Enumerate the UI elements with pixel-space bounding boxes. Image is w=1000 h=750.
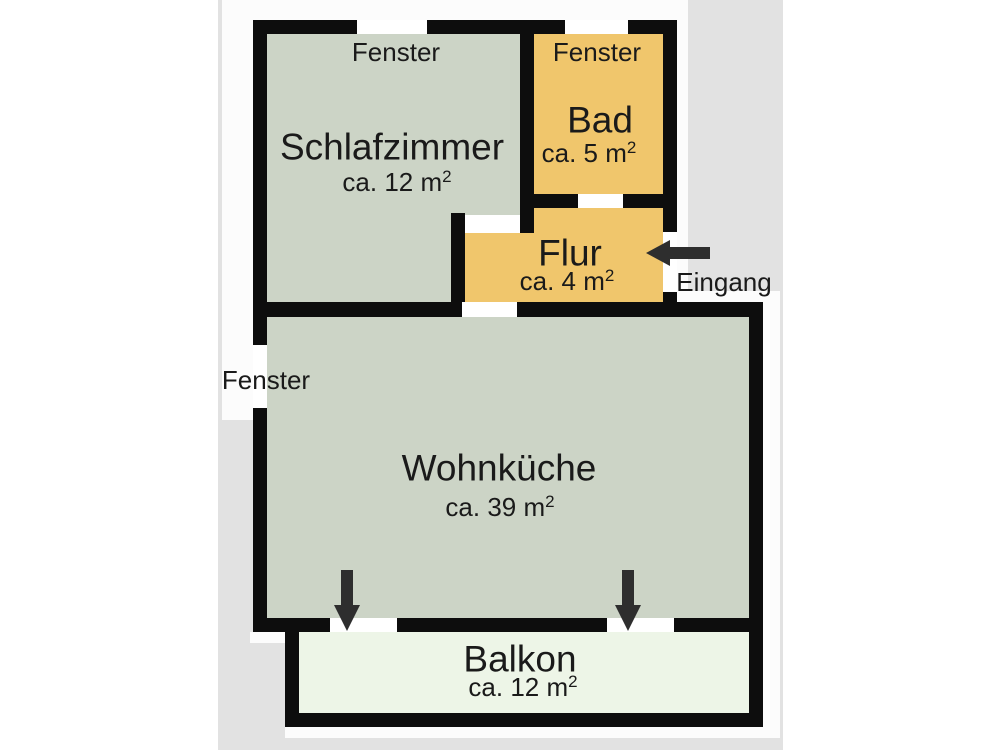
window-label-schlafzimmer: Fenster <box>352 39 440 65</box>
balcony-arrow-2-shaft <box>622 570 634 607</box>
entrance-label: Eingang <box>676 269 771 295</box>
wall-right-lower <box>749 302 763 727</box>
wall-balkon-bottom <box>285 713 763 727</box>
canvas-margin-right <box>763 293 780 738</box>
room-area-bad: ca. 5 m2 <box>542 140 637 166</box>
room-area-schlafzimmer: ca. 12 m2 <box>342 169 451 195</box>
room-name-wohnkueche: Wohnküche <box>402 450 597 487</box>
balcony-arrow-1-icon <box>334 570 360 631</box>
entrance-arrowhead <box>646 240 670 266</box>
room-area-balkon: ca. 12 m2 <box>468 674 577 700</box>
superscript: 2 <box>442 167 451 186</box>
floor-plan: Fenster Fenster Fenster Eingang Schlafzi… <box>0 0 1000 750</box>
window-opening-schlafzimmer <box>357 20 427 34</box>
door-opening-bad-flur <box>578 194 623 208</box>
door-opening-flur-wohnkueche <box>462 302 517 317</box>
window-label-bad: Fenster <box>553 39 641 65</box>
room-area-wohnkueche: ca. 39 m2 <box>445 494 554 520</box>
entrance-arrow-shaft <box>668 247 710 259</box>
entrance-arrow-icon <box>646 240 710 267</box>
balcony-arrow-2-head <box>615 605 641 631</box>
canvas-margin-bottom <box>285 727 763 738</box>
balcony-arrow-1-shaft <box>341 570 353 607</box>
room-area-flur: ca. 4 m2 <box>520 268 615 294</box>
room-name-schlafzimmer: Schlafzimmer <box>280 129 504 166</box>
door-opening-schlafzimmer-flur <box>465 215 520 233</box>
room-name-bad: Bad <box>567 102 633 139</box>
wall-left <box>253 20 267 632</box>
superscript: 2 <box>545 492 554 511</box>
superscript: 2 <box>605 266 614 285</box>
superscript: 2 <box>568 672 577 691</box>
window-opening-bad <box>565 20 628 34</box>
canvas-margin-corner-step <box>250 632 285 643</box>
balcony-arrow-1-head <box>334 605 360 631</box>
superscript: 2 <box>627 138 636 157</box>
balcony-arrow-2-icon <box>615 570 641 631</box>
wall-balkon-left <box>285 618 299 727</box>
window-label-wohnkueche: Fenster <box>222 367 310 393</box>
